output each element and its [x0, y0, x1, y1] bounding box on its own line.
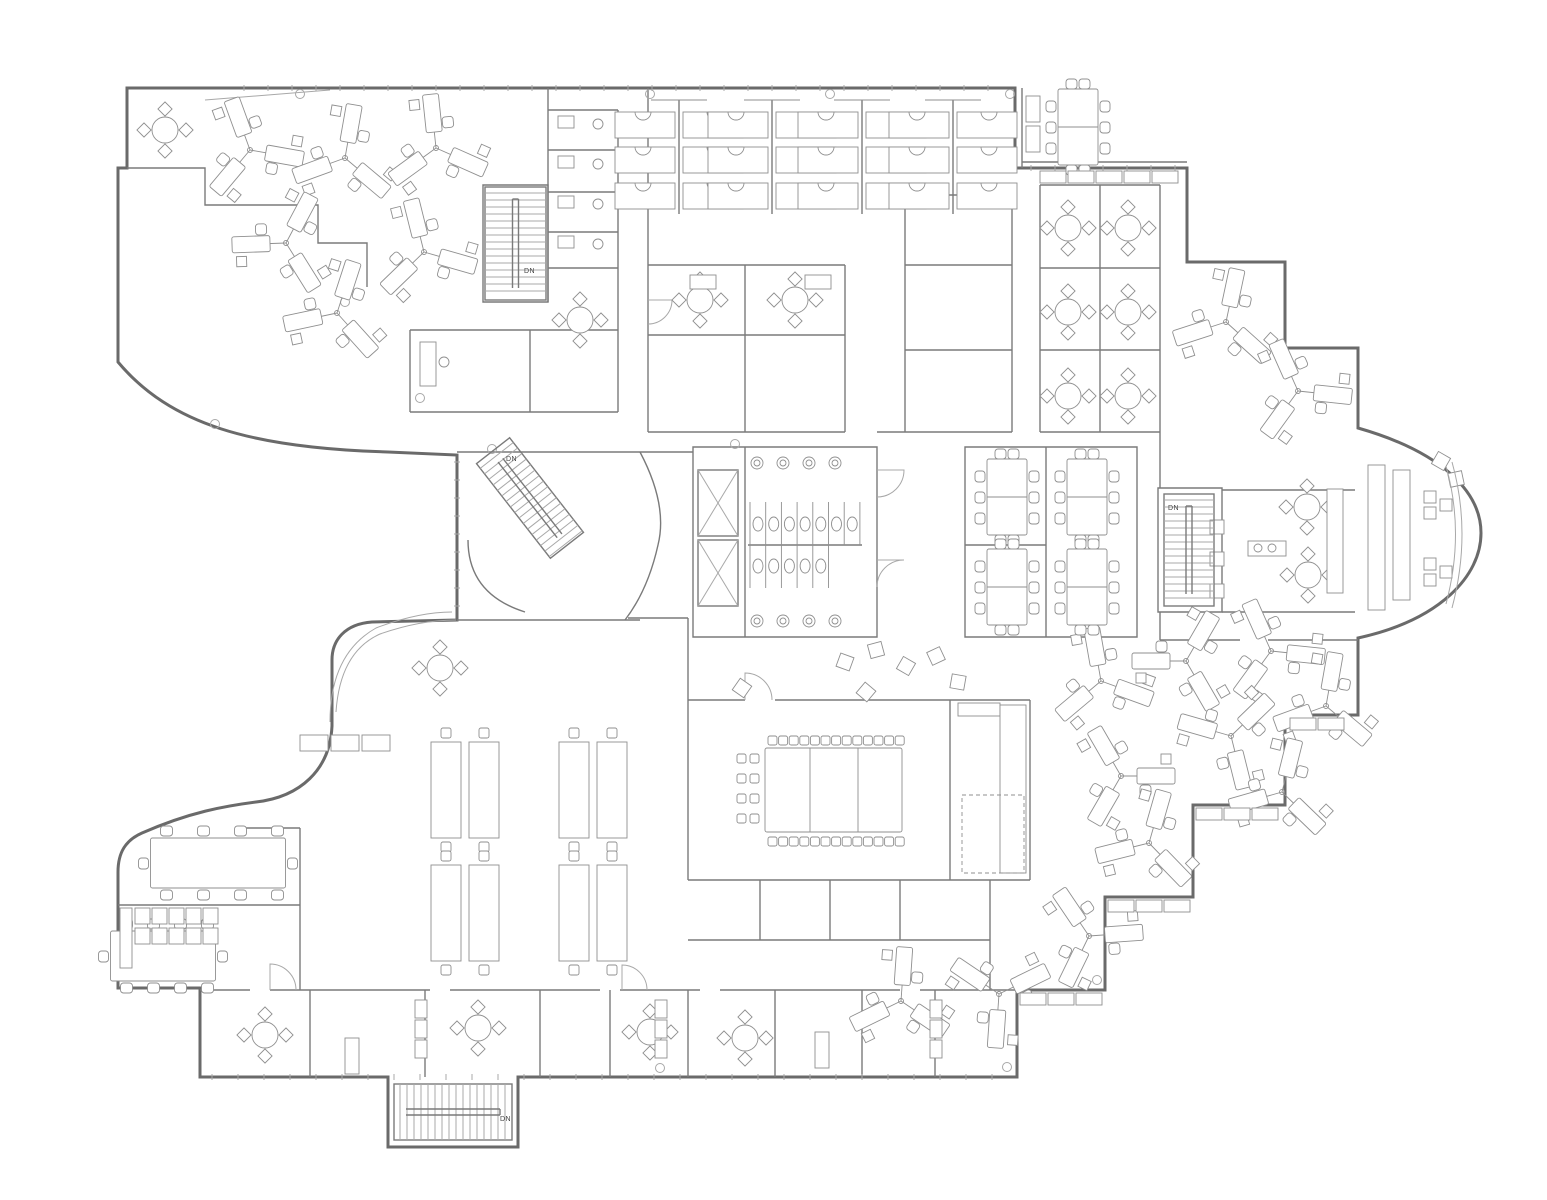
chair	[158, 102, 172, 116]
chair	[788, 314, 802, 328]
chair	[1061, 410, 1075, 424]
desk-pair-station	[559, 728, 627, 852]
toilet-stall	[816, 559, 826, 573]
chair	[1040, 389, 1054, 403]
wall-line	[693, 447, 877, 637]
toilet-stall	[800, 559, 810, 573]
chair	[1082, 305, 1096, 319]
chair	[412, 661, 426, 675]
chair	[1279, 500, 1293, 514]
chair	[672, 293, 686, 307]
chair	[693, 314, 707, 328]
chair	[738, 1052, 752, 1066]
chair	[492, 1021, 506, 1035]
chair	[552, 313, 566, 327]
round-table-4-chairs	[717, 1010, 773, 1066]
toilet-stall	[769, 559, 779, 573]
chair	[1142, 305, 1156, 319]
meeting-table-8-chairs	[1046, 79, 1110, 175]
chair	[258, 1049, 272, 1063]
chair	[767, 293, 781, 307]
round-table-4-chairs	[237, 1007, 293, 1063]
chair	[237, 1028, 251, 1042]
lounge-seat	[836, 653, 854, 671]
chair	[738, 1010, 752, 1024]
chair	[1121, 326, 1135, 340]
chair	[179, 123, 193, 137]
chair	[1121, 284, 1135, 298]
round-table-4-chairs	[1100, 368, 1156, 424]
stair-down-label: DN	[1168, 505, 1179, 512]
chair	[1061, 242, 1075, 256]
cabinet-run	[135, 908, 218, 924]
door-swing	[877, 560, 904, 587]
chair	[809, 293, 823, 307]
elevator	[698, 540, 738, 606]
door-swing	[270, 964, 296, 990]
round-table-4-chairs	[1100, 284, 1156, 340]
chair	[717, 1031, 731, 1045]
lounge-seat	[896, 656, 915, 675]
door-swing	[622, 965, 647, 990]
chair	[1100, 305, 1114, 319]
desk-pair-station	[431, 728, 499, 852]
conference-table-10	[139, 826, 298, 900]
toilet-stall	[847, 517, 857, 531]
chair	[1082, 221, 1096, 235]
round-table-4-chairs	[622, 1004, 678, 1060]
bench-workstation-column	[889, 100, 1017, 214]
chair	[1082, 389, 1096, 403]
chair	[1142, 221, 1156, 235]
chair	[1121, 410, 1135, 424]
toilet-stall	[753, 517, 763, 531]
cabinet-run	[655, 1000, 667, 1058]
toilet-stall	[816, 517, 826, 531]
chair	[788, 272, 802, 286]
cabinet-run	[1108, 900, 1190, 912]
chair	[1121, 200, 1135, 214]
stair-down-label: DN	[524, 268, 535, 275]
chair	[1301, 589, 1315, 603]
cabinet-run	[930, 1000, 942, 1058]
floor-plan-drawing: DNDNDNDN	[0, 0, 1547, 1200]
round-table-4-chairs	[1040, 368, 1096, 424]
toilet-stall	[784, 559, 794, 573]
stair-down-label: DN	[506, 456, 517, 463]
round-table-4-chairs	[450, 1000, 506, 1056]
entry-diagonal	[205, 90, 330, 100]
pinwheel-workstation-cluster	[1197, 578, 1342, 716]
chair	[714, 293, 728, 307]
cabinet-run	[1196, 808, 1278, 820]
lounge-seat	[950, 674, 966, 690]
chair	[573, 334, 587, 348]
stair	[485, 187, 546, 300]
pinwheel-workstation-cluster	[374, 88, 498, 199]
chair	[1121, 368, 1135, 382]
lounge-seat	[1431, 451, 1450, 470]
floor-plan-page: DNDNDNDN	[0, 0, 1547, 1200]
cabinet-run	[1040, 171, 1178, 183]
pinwheel-workstation-cluster	[356, 186, 491, 311]
stair	[394, 1084, 512, 1140]
meeting-table-8-chairs	[1055, 449, 1119, 545]
chair	[1040, 305, 1054, 319]
pinwheel-workstation-cluster	[1114, 586, 1263, 730]
cabinet-run	[135, 928, 218, 944]
round-table-4-chairs	[1040, 284, 1096, 340]
cabinet-run	[1290, 718, 1344, 730]
round-table-4-chairs	[1040, 200, 1096, 256]
restroom-core	[698, 457, 860, 627]
chair	[279, 1028, 293, 1042]
chair	[137, 123, 151, 137]
bay-lounge-seats	[1424, 558, 1452, 586]
chair	[1040, 221, 1054, 235]
chair	[1061, 326, 1075, 340]
chair	[471, 1042, 485, 1056]
wall-line	[625, 452, 661, 620]
lounge-seat	[867, 641, 884, 658]
chair	[433, 682, 447, 696]
chair	[1100, 389, 1114, 403]
chair	[759, 1031, 773, 1045]
desk-pair-station	[431, 851, 499, 975]
chair	[622, 1025, 636, 1039]
round-table-4-chairs	[412, 640, 468, 696]
chair	[471, 1000, 485, 1014]
cabinet-run	[1210, 520, 1224, 598]
door-swing	[877, 470, 904, 497]
toilet-stall	[769, 517, 779, 531]
chair	[1301, 547, 1315, 561]
meeting-table-8-chairs	[1055, 539, 1119, 635]
chair	[594, 313, 608, 327]
chair	[1280, 568, 1294, 582]
stair-down-label: DN	[500, 1116, 511, 1123]
toilet-stall	[832, 517, 842, 531]
desk-pair-station	[559, 851, 627, 975]
chair	[1142, 389, 1156, 403]
furniture	[99, 79, 1465, 1074]
stair-landing-rail	[468, 540, 525, 612]
chair	[1061, 284, 1075, 298]
chair	[1061, 368, 1075, 382]
boardroom	[737, 736, 904, 846]
lounge-seat	[732, 678, 751, 697]
cabinet-run	[1020, 993, 1102, 1005]
chair	[1061, 200, 1075, 214]
atrium-stair	[477, 438, 584, 558]
chair	[1300, 521, 1314, 535]
cabinet-run	[300, 735, 390, 751]
elevator	[698, 470, 738, 536]
chair	[258, 1007, 272, 1021]
pinwheel-workstation-cluster	[841, 943, 962, 1051]
round-table-4-chairs	[1100, 200, 1156, 256]
lounge-seat	[927, 647, 946, 666]
bay-lounge-seats	[1424, 491, 1452, 519]
meeting-table-8-chairs	[975, 449, 1039, 545]
chair	[433, 640, 447, 654]
toilet-stall	[800, 517, 810, 531]
chair	[1100, 221, 1114, 235]
cabinet-run	[415, 1000, 427, 1058]
chair	[450, 1021, 464, 1035]
toilet-stall	[784, 517, 794, 531]
meeting-table-8-chairs	[975, 539, 1039, 635]
pinwheel-workstation-cluster	[1161, 257, 1294, 379]
chair	[1121, 242, 1135, 256]
toilet-stall	[753, 559, 763, 573]
round-table-4-chairs	[137, 102, 193, 158]
round-table-4-chairs	[552, 292, 608, 348]
chair	[454, 661, 468, 675]
chair	[573, 292, 587, 306]
chair	[158, 144, 172, 158]
lounge-seat	[856, 682, 876, 702]
door-swing	[648, 300, 672, 324]
chair	[1300, 479, 1314, 493]
